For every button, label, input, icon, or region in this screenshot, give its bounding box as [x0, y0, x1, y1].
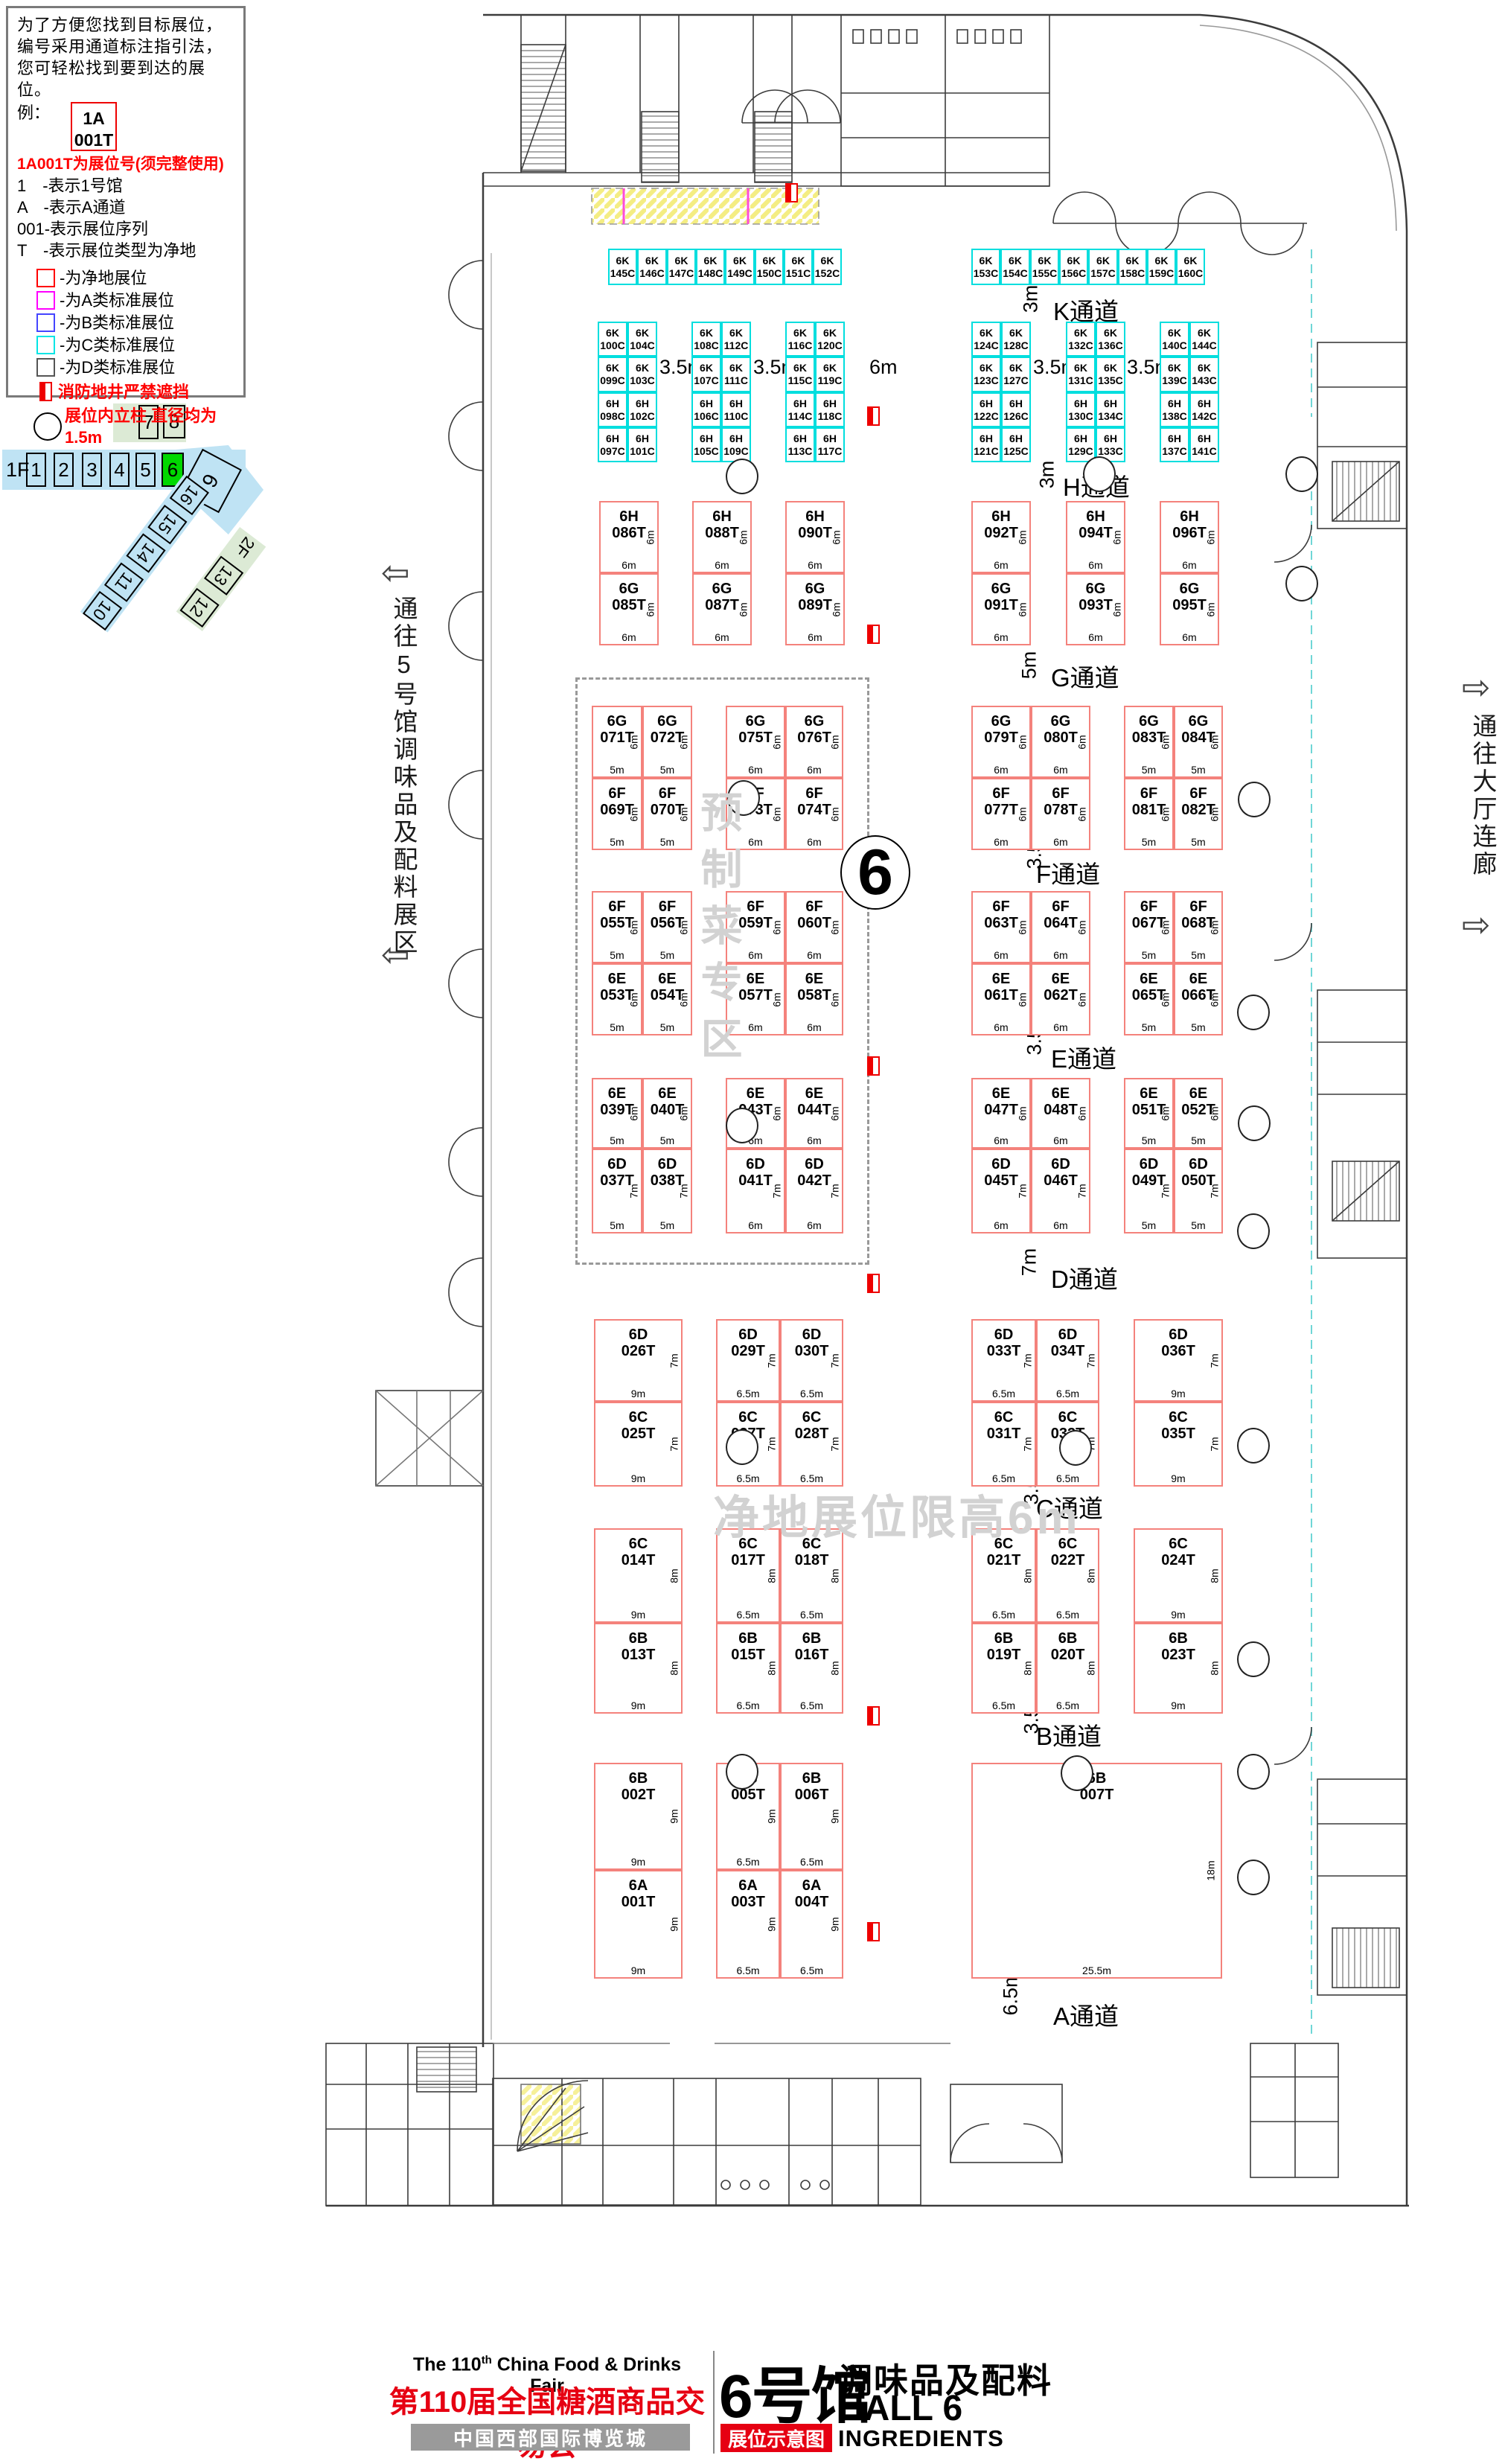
booth-6K139C[interactable]: 6K139C: [1160, 357, 1189, 392]
booth-6D042T[interactable]: 6D042T7m6m: [785, 1149, 843, 1233]
booth-6K115C[interactable]: 6K115C: [785, 357, 815, 392]
booth-width-dim: 9m: [1135, 1472, 1221, 1484]
booth-6G095T[interactable]: 6G095T6m6m: [1160, 573, 1219, 645]
booth-6G071T[interactable]: 6G071T6m5m: [592, 706, 642, 778]
booth-depth-dim: 6m: [1016, 920, 1028, 934]
booth-6E053T[interactable]: 6E053T6m5m: [592, 963, 642, 1035]
booth-6A001T[interactable]: 6A001T9m9m: [594, 1870, 683, 1979]
pillar-icon: [726, 1754, 758, 1790]
minimap-hall-5[interactable]: 5: [135, 453, 156, 487]
booth-6C031T[interactable]: 6C031T7m6.5m: [971, 1402, 1036, 1487]
booth-6B006T[interactable]: 6B006T9m6.5m: [780, 1763, 843, 1870]
booth-width-dim: 6m: [787, 1134, 842, 1146]
pillar-icon: [726, 1108, 758, 1143]
booth-6K143C[interactable]: 6K143C: [1189, 357, 1219, 392]
booth-width-dim: 6m: [973, 1134, 1029, 1146]
booth-depth-dim: 6m: [1204, 530, 1216, 544]
booth-depth-dim: 7m: [1016, 1184, 1028, 1198]
booth-6H121C[interactable]: 6H121C: [971, 427, 1001, 462]
booth-6F067T[interactable]: 6F067T6m5m: [1124, 891, 1174, 963]
pillar-icon: [1237, 1428, 1270, 1464]
booth-width-dim: 6.5m: [1038, 1609, 1098, 1621]
booth-6H102C[interactable]: 6H102C: [627, 392, 657, 427]
booth-6D034T[interactable]: 6D034T7m6.5m: [1036, 1319, 1099, 1402]
booth-depth-dim: 6m: [1208, 807, 1220, 821]
booth-width-dim: 6.5m: [718, 1609, 779, 1621]
booth-6B015T[interactable]: 6B015T8m6.5m: [716, 1623, 780, 1714]
booth-depth-dim: 6m: [770, 920, 782, 934]
booth-6K135C[interactable]: 6K135C: [1096, 357, 1125, 392]
fire-well-icon: [867, 1922, 880, 1941]
booth-6E051T[interactable]: 6E051T6m5m: [1124, 1078, 1174, 1149]
booth-width-dim: 9m: [595, 1472, 681, 1484]
booth-width-dim: 5m: [593, 1219, 641, 1231]
minimap-2f-diag-label: 2F: [231, 533, 259, 561]
booth-depth-dim: 6m: [627, 1106, 639, 1120]
booth-width-dim: 6m: [973, 949, 1029, 961]
booth-depth-dim: 6m: [677, 735, 689, 749]
booth-6D049T[interactable]: 6D049T7m5m: [1124, 1149, 1174, 1233]
booth-6H134C[interactable]: 6H134C: [1096, 392, 1125, 427]
booth-depth-dim: 8m: [1021, 1661, 1033, 1675]
booth-width-dim: 6m: [1067, 559, 1124, 571]
footer-divider: [713, 2351, 715, 2454]
booth-depth-dim: 6m: [1111, 530, 1122, 544]
minimap-hall-1[interactable]: 1: [26, 453, 46, 487]
booth-6C035T[interactable]: 6C035T7m9m: [1134, 1402, 1223, 1487]
booth-6G076T[interactable]: 6G076T6m6m: [785, 706, 843, 778]
booth-depth-dim: 6m: [737, 530, 749, 544]
booth-6K119C[interactable]: 6K119C: [815, 357, 845, 392]
booth-width-dim: 5m: [1175, 1219, 1221, 1231]
booth-6E047T[interactable]: 6E047T6m6m: [971, 1078, 1031, 1149]
booth-width-dim: 5m: [1125, 1219, 1172, 1231]
booth-depth-dim: 6m: [1208, 992, 1220, 1006]
booth-depth-dim: 6m: [677, 992, 689, 1006]
booth-6K128C[interactable]: 6K128C: [1001, 322, 1031, 357]
booth-6F081T[interactable]: 6F081T6m5m: [1124, 778, 1174, 850]
legend-swatch-d-icon: [36, 358, 55, 377]
booth-width-dim: 6m: [1032, 764, 1089, 776]
booth-6H117C[interactable]: 6H117C: [815, 427, 845, 462]
legend-swatch-b-icon: [36, 313, 55, 332]
booth-6H122C[interactable]: 6H122C: [971, 392, 1001, 427]
booth-6E054T[interactable]: 6E054T6m5m: [642, 963, 692, 1035]
booth-6G083T[interactable]: 6G083T6m5m: [1124, 706, 1174, 778]
booth-6D050T[interactable]: 6D050T7m5m: [1174, 1149, 1223, 1233]
booth-6E044T[interactable]: 6E044T6m6m: [785, 1078, 843, 1149]
booth-6B019T[interactable]: 6B019T8m6.5m: [971, 1623, 1036, 1714]
booth-6C028T[interactable]: 6C028T7m6.5m: [780, 1402, 843, 1487]
booth-width-dim: 6.5m: [1038, 1388, 1098, 1399]
booth-6F082T[interactable]: 6F082T6m5m: [1174, 778, 1223, 850]
booth-6G075T[interactable]: 6G075T6m6m: [726, 706, 785, 778]
fire-well-icon: [867, 406, 880, 426]
minimap-hall-12[interactable]: 12: [180, 588, 220, 628]
booth-depth-dim: 7m: [1208, 1184, 1220, 1198]
booth-depth-dim: 7m: [668, 1437, 680, 1451]
fire-well-icon: [867, 1706, 880, 1726]
booth-depth-dim: 6m: [770, 1106, 782, 1120]
booth-6H142C[interactable]: 6H142C: [1189, 392, 1219, 427]
booth-6H098C[interactable]: 6H098C: [598, 392, 627, 427]
booth-6H126C[interactable]: 6H126C: [1001, 392, 1031, 427]
booth-6E061T[interactable]: 6E061T6m6m: [971, 963, 1031, 1035]
booth-depth-dim: 7m: [677, 1184, 689, 1198]
booth-6K131C[interactable]: 6K131C: [1066, 357, 1096, 392]
booth-width-dim: 6m: [727, 764, 784, 776]
booth-width-dim: 6m: [694, 559, 750, 571]
booth-6K159C[interactable]: 6K159C: [1147, 249, 1176, 285]
booth-depth-dim: 8m: [765, 1661, 777, 1675]
booth-6F077T[interactable]: 6F077T6m6m: [971, 778, 1031, 850]
booth-depth-dim: 6m: [830, 602, 842, 616]
booth-depth-dim: 6m: [828, 735, 840, 749]
booth-6G093T[interactable]: 6G093T6m6m: [1066, 573, 1125, 645]
booth-depth-dim: 6m: [627, 735, 639, 749]
booth-6K112C[interactable]: 6K112C: [721, 322, 751, 357]
pillar-icon: [1238, 1105, 1271, 1141]
booth-6B007T[interactable]: 6B007T18m25.5m: [971, 1763, 1222, 1979]
booth-6E039T[interactable]: 6E039T6m5m: [592, 1078, 642, 1149]
pillar-icon: [1237, 995, 1270, 1030]
minimap-hall-2[interactable]: 2: [54, 453, 74, 487]
pillar-icon: [1238, 782, 1271, 817]
minimap-hall-10[interactable]: 10: [83, 591, 122, 631]
booth-6G087T[interactable]: 6G087T6m6m: [692, 573, 752, 645]
booth-6F063T[interactable]: 6F063T6m6m: [971, 891, 1031, 963]
fire-well-icon: [867, 1056, 880, 1076]
booth-6F064T[interactable]: 6F064T6m6m: [1031, 891, 1090, 963]
booth-6K116C[interactable]: 6K116C: [785, 322, 815, 357]
booth-6H129C[interactable]: 6H129C: [1066, 427, 1096, 462]
booth-depth-dim: 6m: [1076, 807, 1087, 821]
booth-6K151C[interactable]: 6K151C: [784, 249, 813, 285]
booth-6K154C[interactable]: 6K154C: [1000, 249, 1030, 285]
minimap-hall-3[interactable]: 3: [82, 453, 102, 487]
booth-width-dim: 6.5m: [782, 1856, 842, 1868]
booth-depth-dim: 6m: [828, 807, 840, 821]
booth-6G072T[interactable]: 6G072T6m5m: [642, 706, 692, 778]
booth-6K099C[interactable]: 6K099C: [598, 357, 627, 392]
booth-width-dim: 6m: [973, 559, 1029, 571]
booth-width-dim: 5m: [1175, 1134, 1221, 1146]
hall-category-en: INGREDIENTS: [838, 2425, 1004, 2452]
booth-6D033T[interactable]: 6D033T7m6.5m: [971, 1319, 1036, 1402]
booth-depth-dim: 7m: [765, 1353, 777, 1367]
booth-width-dim: 6m: [1032, 949, 1089, 961]
booth-depth-dim: 6m: [1016, 735, 1028, 749]
booth-6F078T[interactable]: 6F078T6m6m: [1031, 778, 1090, 850]
booth-6H110C[interactable]: 6H110C: [721, 392, 751, 427]
booth-6K111C[interactable]: 6K111C: [721, 357, 751, 392]
booth-depth-dim: 7m: [668, 1353, 680, 1367]
booth-width-dim: 5m: [644, 836, 691, 848]
booth-6G080T[interactable]: 6G080T6m6m: [1031, 706, 1090, 778]
booth-6H118C[interactable]: 6H118C: [815, 392, 845, 427]
booth-6H109C[interactable]: 6H109C: [721, 427, 751, 462]
booth-depth-dim: 8m: [765, 1568, 777, 1583]
booth-depth-dim: 6m: [1016, 992, 1028, 1006]
booth-6D038T[interactable]: 6D038T7m5m: [642, 1149, 692, 1233]
booth-6F055T[interactable]: 6F055T6m5m: [592, 891, 642, 963]
booth-6H114C[interactable]: 6H114C: [785, 392, 815, 427]
minimap-hall-15[interactable]: 15: [148, 505, 188, 544]
booth-6D036T[interactable]: 6D036T7m9m: [1134, 1319, 1223, 1402]
legend-note-red: 1A001T为展位号(须完整使用): [17, 154, 234, 175]
booth-6B016T[interactable]: 6B016T8m6.5m: [780, 1623, 843, 1714]
booth-6H092T[interactable]: 6H092T6m6m: [971, 501, 1031, 573]
booth-width-dim: 5m: [1125, 1134, 1172, 1146]
booth-width-dim: 5m: [1175, 764, 1221, 776]
booth-6C025T[interactable]: 6C025T7m9m: [594, 1402, 683, 1487]
booth-6H125C[interactable]: 6H125C: [1001, 427, 1031, 462]
legend-intro: 为了方便您找到目标展位，编号采用通道标注指引法，您可轻松找到要到达的展位。: [17, 14, 234, 100]
booth-depth-dim: 7m: [1208, 1353, 1220, 1367]
booth-depth-dim: 6m: [627, 992, 639, 1006]
booth-6H096T[interactable]: 6H096T6m6m: [1160, 501, 1219, 573]
booth-6H137C[interactable]: 6H137C: [1160, 427, 1189, 462]
booth-width-dim: 5m: [644, 1219, 691, 1231]
booth-6F070T[interactable]: 6F070T6m5m: [642, 778, 692, 850]
booth-6B002T[interactable]: 6B002T9m9m: [594, 1763, 683, 1870]
booth-6K107C[interactable]: 6K107C: [691, 357, 721, 392]
legend-swatch-a-icon: [36, 291, 55, 310]
booth-depth-dim: 7m: [765, 1437, 777, 1451]
booth-6D045T[interactable]: 6D045T7m6m: [971, 1149, 1031, 1233]
legend-pillar-note: 展位内立柱 直径均为1.5m: [65, 405, 234, 448]
aisle-label-E: E通道: [1051, 1039, 1116, 1075]
legend-item: A -表示A通道: [17, 197, 234, 218]
legend-item: 1 -表示1号馆: [17, 175, 234, 197]
booth-6K132C[interactable]: 6K132C: [1066, 322, 1096, 357]
booth-depth-dim: 7m: [828, 1437, 840, 1451]
aisle-width-dim: 3m: [1019, 285, 1042, 313]
legend-panel: 为了方便您找到目标展位，编号采用通道标注指引法，您可轻松找到要到达的展位。 例：…: [6, 6, 246, 398]
booth-6B020T[interactable]: 6B020T8m6.5m: [1036, 1623, 1099, 1714]
booth-6K146C[interactable]: 6K146C: [637, 249, 667, 285]
legend-item: T -表示展位类型为净地: [17, 240, 234, 261]
booth-depth-dim: 6m: [770, 992, 782, 1006]
legend-example-label: 例：: [17, 102, 50, 124]
booth-depth-dim: 6m: [770, 807, 782, 821]
booth-6K152C[interactable]: 6K152C: [813, 249, 842, 285]
booth-6E058T[interactable]: 6E058T6m6m: [785, 963, 843, 1035]
booth-6H090T[interactable]: 6H090T6m6m: [785, 501, 845, 573]
booth-width-dim: 6.5m: [782, 1699, 842, 1711]
booth-6F069T[interactable]: 6F069T6m5m: [592, 778, 642, 850]
booth-6K123C[interactable]: 6K123C: [971, 357, 1001, 392]
booth-width-dim: 6m: [787, 949, 842, 961]
booth-depth-dim: 6m: [828, 992, 840, 1006]
booth-width-dim: 6m: [1161, 631, 1218, 643]
booth-6B013T[interactable]: 6B013T8m9m: [594, 1623, 683, 1714]
fair-name-cn: 第110届全国糖酒商品交易会: [387, 2378, 707, 2464]
fire-well-icon: [785, 183, 798, 202]
booth-depth-dim: 9m: [765, 1917, 777, 1931]
booth-6K156C[interactable]: 6K156C: [1059, 249, 1088, 285]
booth-width-dim: 9m: [595, 1965, 681, 1976]
booth-width-dim: 6.5m: [782, 1609, 842, 1621]
aisle-label-A: A通道: [1053, 1997, 1119, 2032]
booth-width-dim: 6m: [727, 1219, 784, 1231]
booth-6F074T[interactable]: 6F074T6m6m: [785, 778, 843, 850]
premade-food-zone-watermark: 预制菜专区: [688, 791, 749, 1073]
pillar-icon: [33, 412, 62, 441]
booth-6K100C[interactable]: 6K100C: [598, 322, 627, 357]
booth-6K150C[interactable]: 6K150C: [755, 249, 784, 285]
booth-6D030T[interactable]: 6D030T7m6.5m: [780, 1319, 843, 1402]
fire-well-icon: [867, 1274, 880, 1293]
booth-depth-dim: 8m: [1021, 1568, 1033, 1583]
aisle-label-G: G通道: [1051, 658, 1119, 694]
booth-6H113C[interactable]: 6H113C: [785, 427, 815, 462]
booth-width-dim: 6m: [601, 631, 657, 643]
right-arrow-top-icon: ⇨: [1462, 667, 1491, 707]
booth-depth-dim: 8m: [1084, 1568, 1096, 1583]
booth-6H141C[interactable]: 6H141C: [1189, 427, 1219, 462]
booth-6K127C[interactable]: 6K127C: [1001, 357, 1031, 392]
booth-6B023T[interactable]: 6B023T8m9m: [1134, 1623, 1223, 1714]
booth-6E052T[interactable]: 6E052T6m5m: [1174, 1078, 1223, 1149]
minimap-hall-11[interactable]: 11: [104, 562, 144, 601]
booth-6H101C[interactable]: 6H101C: [627, 427, 657, 462]
aisle-width-dim: 3m: [1035, 461, 1058, 489]
booth-6H106C[interactable]: 6H106C: [691, 392, 721, 427]
booth-width-dim: 6m: [787, 1219, 842, 1231]
booth-6G089T[interactable]: 6G089T6m6m: [785, 573, 845, 645]
booth-width-dim: 6.5m: [718, 1856, 779, 1868]
booth-6G085T[interactable]: 6G085T6m6m: [599, 573, 659, 645]
booth-6H097C[interactable]: 6H097C: [598, 427, 627, 462]
booth-depth-dim: 6m: [644, 602, 656, 616]
booth-depth-dim: 6m: [644, 530, 656, 544]
booth-depth-dim: 6m: [1159, 992, 1171, 1006]
booth-depth-dim: 6m: [677, 920, 689, 934]
booth-depth-dim: 6m: [1208, 1106, 1220, 1120]
booth-6D041T[interactable]: 6D041T7m6m: [726, 1149, 785, 1233]
booth-6K140C[interactable]: 6K140C: [1160, 322, 1189, 357]
booth-6E065T[interactable]: 6E065T6m5m: [1124, 963, 1174, 1035]
booth-width-dim: 5m: [1175, 836, 1221, 848]
booth-6H088T[interactable]: 6H088T6m6m: [692, 501, 752, 573]
booth-6E066T[interactable]: 6E066T6m5m: [1174, 963, 1223, 1035]
booth-6E040T[interactable]: 6E040T6m5m: [642, 1078, 692, 1149]
booth-width-dim: 5m: [644, 764, 691, 776]
booth-width-dim: 6m: [1032, 1021, 1089, 1033]
booth-6E062T[interactable]: 6E062T6m6m: [1031, 963, 1090, 1035]
booth-depth-dim: 7m: [770, 1184, 782, 1198]
booth-6K145C[interactable]: 6K145C: [608, 249, 637, 285]
booth-width-dim: 6m: [1032, 1219, 1089, 1231]
booth-6K124C[interactable]: 6K124C: [971, 322, 1001, 357]
booth-6K136C[interactable]: 6K136C: [1096, 322, 1125, 357]
booth-6D029T[interactable]: 6D029T7m6.5m: [716, 1319, 780, 1402]
booth-depth-dim: 6m: [1159, 807, 1171, 821]
booth-width-dim: 9m: [595, 1609, 681, 1621]
booth-6K155C[interactable]: 6K155C: [1030, 249, 1059, 285]
booth-6K158C[interactable]: 6K158C: [1118, 249, 1147, 285]
booth-6F068T[interactable]: 6F068T6m5m: [1174, 891, 1223, 963]
booth-width-dim: 6m: [973, 631, 1029, 643]
fire-well-icon: [39, 382, 52, 401]
booth-6K104C[interactable]: 6K104C: [627, 322, 657, 357]
booth-6K144C[interactable]: 6K144C: [1189, 322, 1219, 357]
booth-depth-dim: 6m: [1076, 992, 1087, 1006]
booth-6H094T[interactable]: 6H094T6m6m: [1066, 501, 1125, 573]
booth-6K108C[interactable]: 6K108C: [691, 322, 721, 357]
booth-6K149C[interactable]: 6K149C: [725, 249, 755, 285]
booth-width-dim: 9m: [595, 1856, 681, 1868]
booth-6A004T[interactable]: 6A004T9m6.5m: [780, 1870, 843, 1979]
booth-6C014T[interactable]: 6C014T8m9m: [594, 1528, 683, 1623]
booth-6K157C[interactable]: 6K157C: [1088, 249, 1118, 285]
booth-width-dim: 6m: [973, 1219, 1029, 1231]
minimap-hall-4[interactable]: 4: [109, 453, 130, 487]
minimap-hall-13[interactable]: 13: [204, 556, 243, 596]
booth-6D046T[interactable]: 6D046T7m6m: [1031, 1149, 1090, 1233]
booth-width-dim: 5m: [644, 949, 691, 961]
booth-6E048T[interactable]: 6E048T6m6m: [1031, 1078, 1090, 1149]
booth-6K153C[interactable]: 6K153C: [971, 249, 1000, 285]
booth-depth-dim: 6m: [737, 602, 749, 616]
booth-depth-dim: 7m: [1084, 1353, 1096, 1367]
booth-width-dim: 6.5m: [973, 1388, 1035, 1399]
booth-6H105C[interactable]: 6H105C: [691, 427, 721, 462]
booth-6K103C[interactable]: 6K103C: [627, 357, 657, 392]
booth-depth-dim: 6m: [677, 807, 689, 821]
booth-width-dim: 6m: [1032, 836, 1089, 848]
booth-6H138C[interactable]: 6H138C: [1160, 392, 1189, 427]
fire-well-icon: [867, 625, 880, 644]
booth-6G084T[interactable]: 6G084T6m5m: [1174, 706, 1223, 778]
booth-6D037T[interactable]: 6D037T7m5m: [592, 1149, 642, 1233]
booth-6H086T[interactable]: 6H086T6m6m: [599, 501, 659, 573]
legend-swatch-t-icon: [36, 269, 55, 287]
booth-depth-dim: 7m: [1076, 1184, 1087, 1198]
minimap-hall-14[interactable]: 14: [126, 533, 165, 572]
booth-depth-dim: 6m: [1076, 1106, 1087, 1120]
booth-width-dim: 5m: [1125, 1021, 1172, 1033]
right-corridor-label: 通往大厅连廊: [1465, 713, 1501, 878]
booth-width-dim: 6m: [787, 559, 843, 571]
booth-depth-dim: 6m: [828, 920, 840, 934]
booth-depth-dim: 6m: [1111, 602, 1122, 616]
booth-6H130C[interactable]: 6H130C: [1066, 392, 1096, 427]
booth-6C024T[interactable]: 6C024T8m9m: [1134, 1528, 1223, 1623]
booth-6G091T[interactable]: 6G091T6m6m: [971, 573, 1031, 645]
booth-6A003T[interactable]: 6A003T9m6.5m: [716, 1870, 780, 1979]
booth-6D026T[interactable]: 6D026T7m9m: [594, 1319, 683, 1402]
booth-depth-dim: 8m: [1084, 1661, 1096, 1675]
booth-width-dim: 5m: [644, 1021, 691, 1033]
booth-6K148C[interactable]: 6K148C: [696, 249, 725, 285]
booth-width-dim: 9m: [1135, 1699, 1221, 1711]
booth-6F056T[interactable]: 6F056T6m5m: [642, 891, 692, 963]
booth-6K120C[interactable]: 6K120C: [815, 322, 845, 357]
booth-6F060T[interactable]: 6F060T6m6m: [785, 891, 843, 963]
booth-6K160C[interactable]: 6K160C: [1176, 249, 1205, 285]
booth-width-dim: 6m: [787, 631, 843, 643]
booth-width-dim: 6.5m: [718, 1699, 779, 1711]
booth-6G079T[interactable]: 6G079T6m6m: [971, 706, 1031, 778]
booth-depth-dim: 7m: [828, 1353, 840, 1367]
booth-width-dim: 5m: [1175, 949, 1221, 961]
booth-depth-dim: 9m: [765, 1809, 777, 1823]
booth-6K147C[interactable]: 6K147C: [667, 249, 696, 285]
booth-width-dim: 6m: [1032, 1134, 1089, 1146]
booth-width-dim: 6m: [694, 631, 750, 643]
